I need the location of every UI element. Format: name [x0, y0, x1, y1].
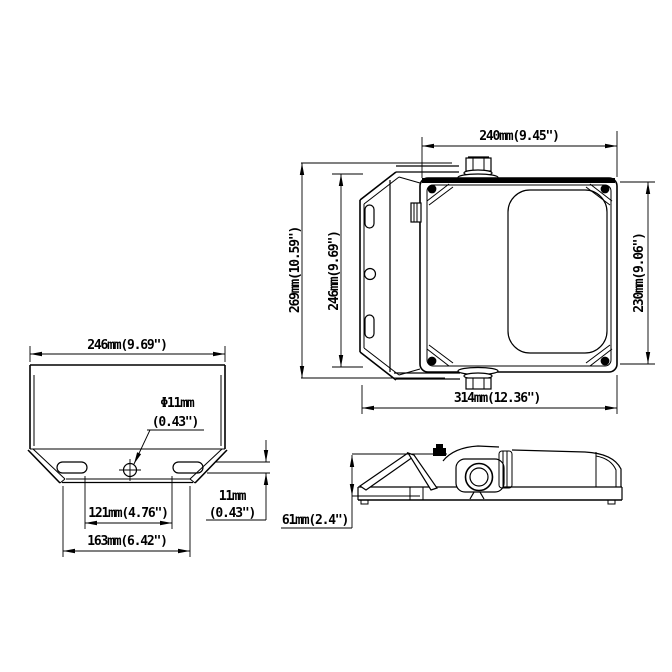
technical-drawing-page: 240mm(9.45") 269mm(10.59") 246mm(9.69") …: [0, 0, 672, 672]
dim-269-label: 269mm(10.59"): [288, 227, 303, 313]
dim-121: 121mm(4.76"): [85, 476, 172, 529]
dim-61: 61mm(2.4"): [281, 454, 447, 528]
dim-246-bracket-label: 246mm(9.69"): [87, 338, 167, 353]
callout-hole-diameter: Φ11mm (0.43"): [134, 396, 204, 464]
side-bracket-arm: [360, 453, 413, 490]
technical-drawing-canvas: 240mm(9.45") 269mm(10.59") 246mm(9.69") …: [0, 0, 672, 672]
dim-314-label: 314mm(12.36"): [454, 391, 540, 406]
screw-icon: [601, 185, 610, 194]
side-bracket-arm: [408, 453, 437, 490]
screw-icon: [428, 357, 437, 366]
dim-163: 163mm(6.42"): [63, 486, 190, 557]
side-view-drawing: 61mm(2.4"): [281, 444, 622, 528]
dim-11-in-label: (0.43"): [209, 506, 255, 521]
center-hole-crosshair: [119, 459, 141, 481]
top-view-drawing: 240mm(9.45") 269mm(10.59") 246mm(9.69") …: [288, 129, 655, 414]
dim-246-top-view: 246mm(9.69"): [327, 174, 363, 367]
dim-240-label: 240mm(9.45"): [479, 129, 559, 144]
dim-11-mm-label: 11mm: [219, 489, 247, 504]
screw-icon: [428, 185, 437, 194]
top-view-bottom-bolt: [458, 368, 498, 390]
bracket-view-drawing: 246mm(9.69") Φ11mm (0.43") 121mm(4.76") …: [28, 338, 270, 557]
dim-246-bracket: 246mm(9.69"): [30, 338, 225, 362]
dim-230-label: 230mm(9.06"): [632, 233, 647, 313]
side-view-body: [358, 444, 622, 504]
mount-slot-left: [57, 462, 87, 473]
dim-163-label: 163mm(6.42"): [87, 534, 167, 549]
dim-230: 230mm(9.06"): [620, 182, 655, 364]
hole-diameter-in-label: (0.43"): [152, 415, 198, 430]
dim-121-label: 121mm(4.76"): [88, 506, 168, 521]
dim-61-label: 61mm(2.4"): [282, 513, 348, 528]
dim-246-top-view-label: 246mm(9.69"): [327, 231, 342, 311]
dim-240: 240mm(9.45"): [422, 129, 617, 178]
screw-icon: [601, 357, 610, 366]
hole-diameter-mm-label: Φ11mm: [160, 396, 195, 411]
dim-11: 11mm (0.43"): [206, 440, 270, 521]
top-view-body: [411, 178, 617, 372]
